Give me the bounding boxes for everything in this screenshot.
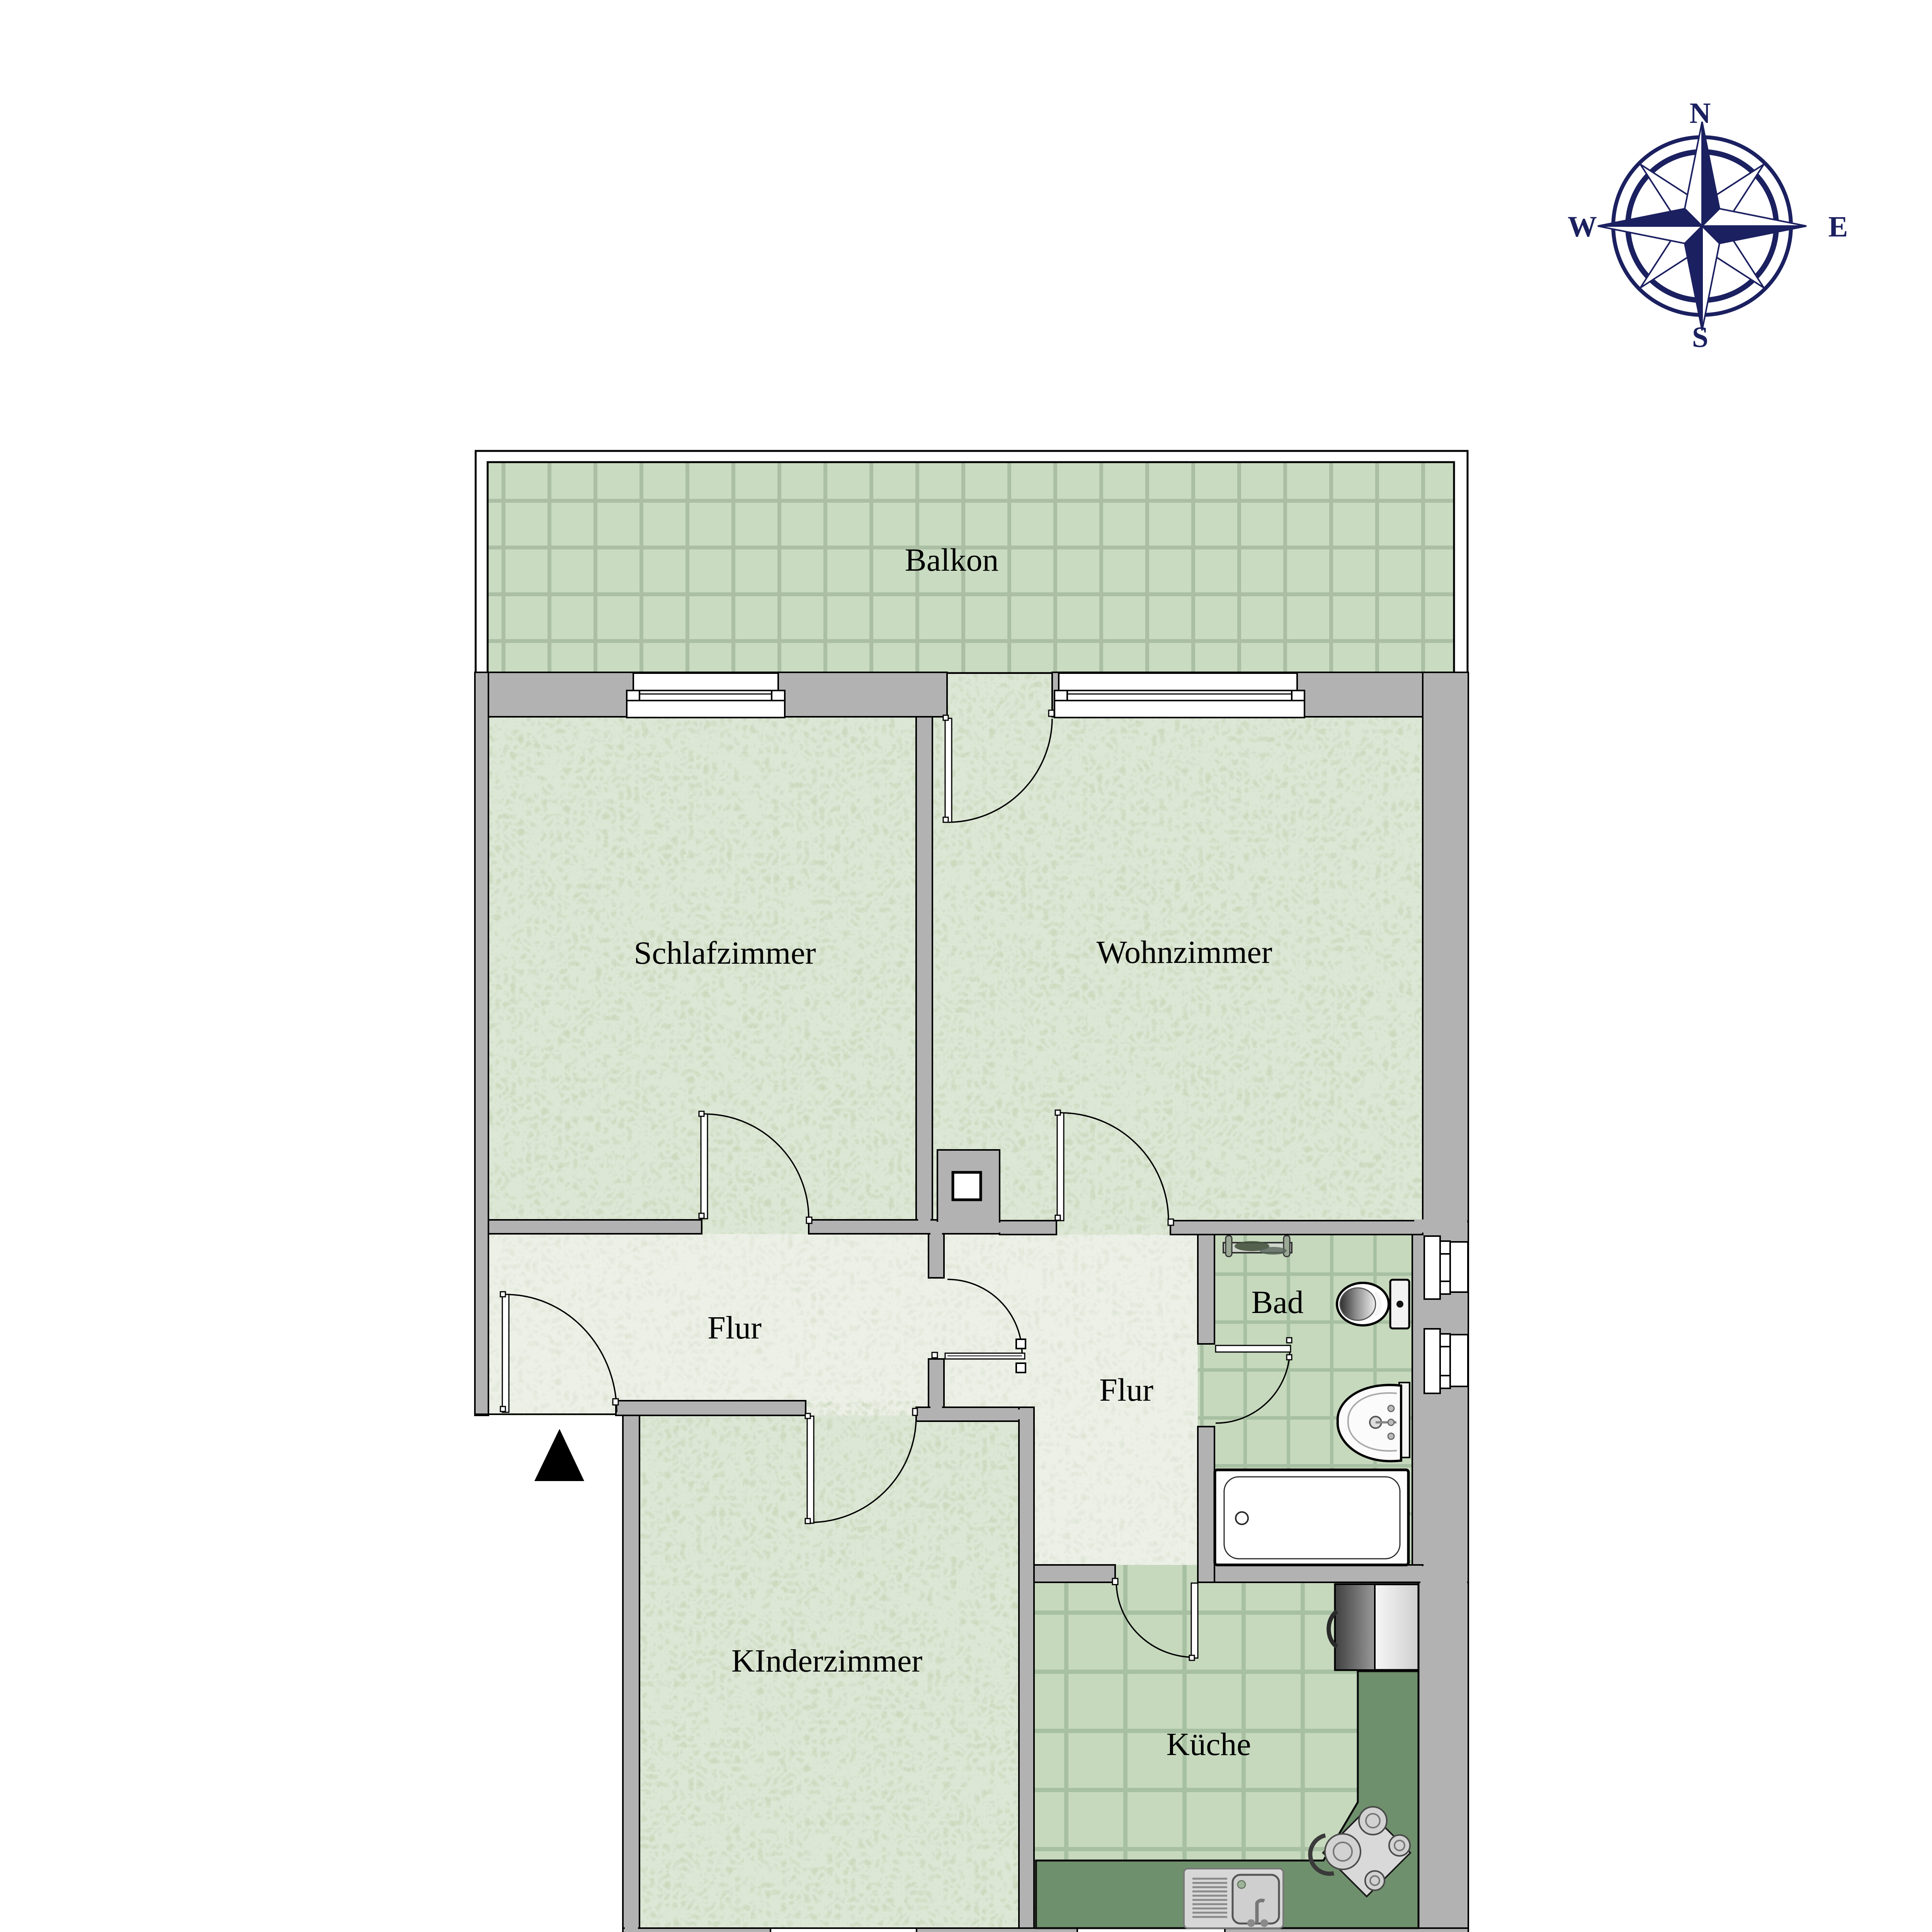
svg-text:Schlafzimmer: Schlafzimmer bbox=[634, 935, 816, 971]
svg-text:Wohnzimmer: Wohnzimmer bbox=[1096, 934, 1272, 970]
svg-text:N: N bbox=[1690, 97, 1711, 129]
svg-text:Flur: Flur bbox=[1099, 1372, 1153, 1408]
svg-text:Bad: Bad bbox=[1251, 1284, 1303, 1320]
svg-text:S: S bbox=[1692, 321, 1708, 354]
svg-text:KInderzimmer: KInderzimmer bbox=[731, 1643, 922, 1679]
svg-text:E: E bbox=[1828, 211, 1848, 243]
svg-text:Küche: Küche bbox=[1166, 1726, 1251, 1762]
svg-text:Flur: Flur bbox=[707, 1310, 762, 1346]
svg-text:W: W bbox=[1568, 211, 1597, 243]
svg-text:Balkon: Balkon bbox=[905, 542, 999, 578]
